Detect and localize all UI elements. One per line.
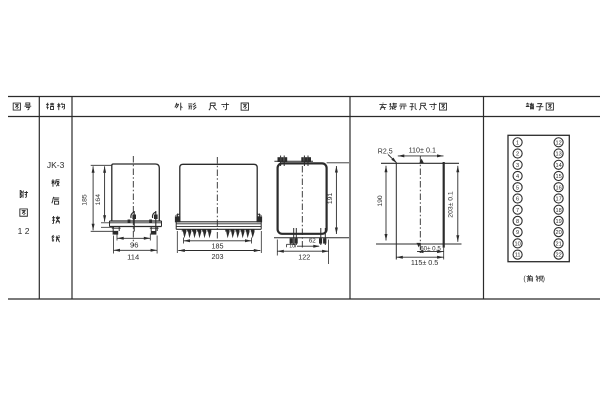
- svg-text:110± 0.1: 110± 0.1: [409, 145, 436, 154]
- svg-text:185: 185: [81, 194, 88, 206]
- svg-text:5: 5: [516, 185, 519, 191]
- svg-text:191: 191: [327, 193, 334, 205]
- svg-text:62: 62: [309, 238, 316, 245]
- svg-text:10: 10: [289, 243, 295, 249]
- svg-text:10: 10: [514, 241, 520, 247]
- svg-text:122: 122: [298, 252, 310, 261]
- svg-text:20: 20: [555, 230, 561, 236]
- svg-text:164: 164: [95, 194, 102, 206]
- svg-text:96: 96: [130, 241, 138, 250]
- svg-text:17: 17: [555, 197, 561, 203]
- svg-text:7: 7: [516, 208, 519, 214]
- svg-text:3: 3: [516, 163, 519, 169]
- svg-text:11: 11: [515, 253, 521, 259]
- svg-text:190: 190: [377, 195, 384, 207]
- svg-text:2: 2: [516, 152, 519, 158]
- svg-text:8: 8: [516, 219, 519, 225]
- svg-text:114: 114: [127, 253, 139, 262]
- svg-text:13: 13: [555, 152, 561, 158]
- svg-text:22: 22: [555, 253, 561, 259]
- svg-text:): ): [543, 276, 545, 283]
- svg-text:203± 0.1: 203± 0.1: [447, 191, 454, 218]
- svg-text:12: 12: [555, 140, 561, 146]
- svg-text:14: 14: [555, 163, 561, 169]
- svg-text:18: 18: [555, 208, 561, 214]
- svg-text:21: 21: [555, 241, 561, 247]
- svg-text:9: 9: [516, 230, 519, 236]
- svg-text:16: 16: [555, 185, 561, 191]
- svg-text:JK-3: JK-3: [47, 160, 65, 170]
- svg-text:6: 6: [516, 197, 519, 203]
- svg-text:R2.5: R2.5: [378, 148, 393, 155]
- svg-text:4: 4: [516, 174, 519, 180]
- svg-text:1: 1: [516, 140, 519, 146]
- svg-text:203: 203: [212, 252, 224, 261]
- svg-text:19: 19: [555, 219, 561, 225]
- svg-text:1 2: 1 2: [18, 226, 30, 236]
- svg-text:115± 0.5: 115± 0.5: [411, 258, 438, 267]
- svg-text:185: 185: [212, 241, 224, 250]
- svg-text:15: 15: [555, 174, 561, 180]
